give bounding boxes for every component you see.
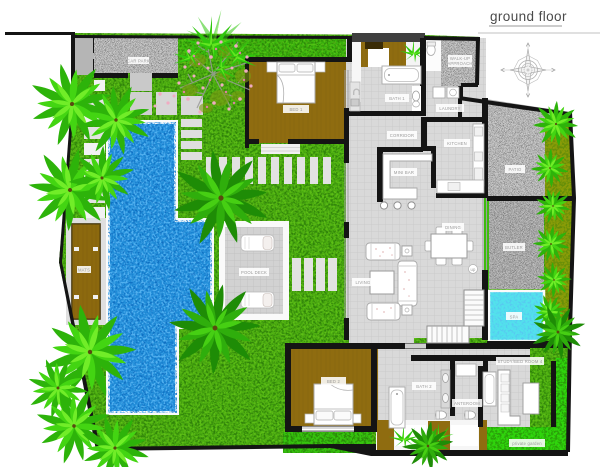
svg-text:ground floor: ground floor	[490, 9, 567, 24]
svg-text:BATH 2: BATH 2	[416, 384, 432, 389]
svg-text:BED 1: BED 1	[289, 107, 303, 112]
svg-text:up: up	[470, 267, 476, 272]
svg-text:BUTLER: BUTLER	[505, 245, 523, 250]
svg-text:MINI BAR: MINI BAR	[394, 170, 414, 175]
svg-text:MATS: MATS	[78, 268, 90, 273]
svg-text:POOL DECK: POOL DECK	[241, 270, 267, 275]
svg-text:BED 2: BED 2	[327, 379, 341, 384]
svg-text:LAUNDRY: LAUNDRY	[439, 106, 460, 111]
svg-text:STUDY/BED ROOM 4: STUDY/BED ROOM 4	[498, 359, 543, 364]
svg-text:SPA: SPA	[510, 314, 519, 319]
svg-text:DINING: DINING	[445, 225, 461, 230]
svg-text:CORRIDOR: CORRIDOR	[390, 133, 414, 138]
svg-text:APPROACH: APPROACH	[447, 61, 472, 66]
svg-text:PATIO: PATIO	[509, 167, 522, 172]
svg-text:private garden: private garden	[512, 441, 542, 446]
svg-text:ANTEROOM: ANTEROOM	[454, 401, 480, 406]
svg-text:KITCHEN: KITCHEN	[447, 141, 467, 146]
svg-text:BATH 1: BATH 1	[389, 96, 405, 101]
svg-text:LIVING: LIVING	[356, 280, 371, 285]
svg-text:CAR PARK: CAR PARK	[127, 58, 150, 63]
